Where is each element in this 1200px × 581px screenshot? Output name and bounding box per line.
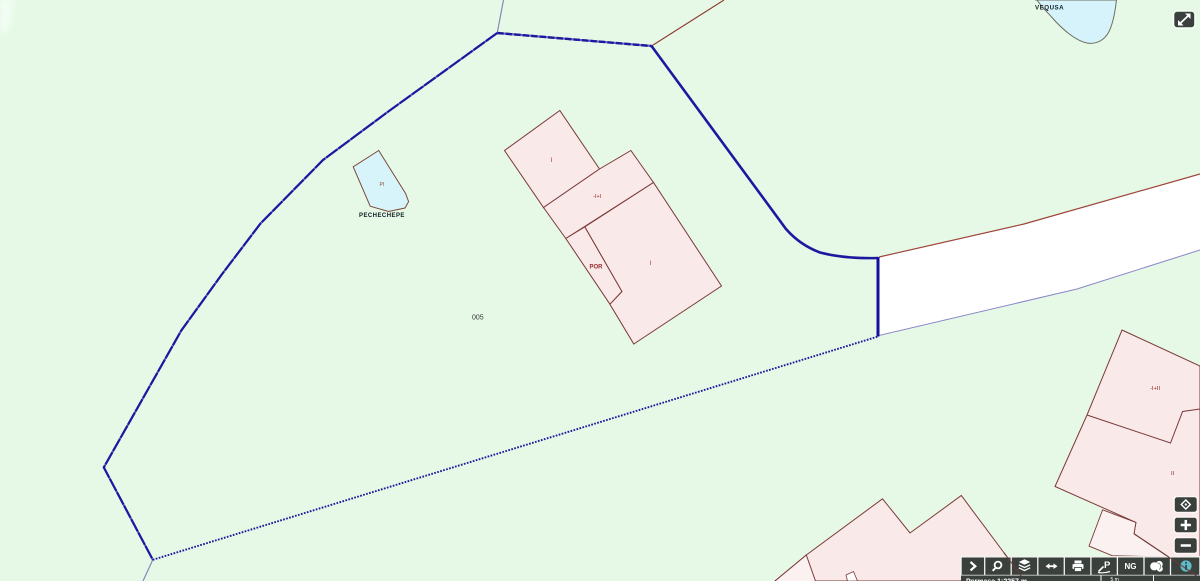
svg-text:5 m: 5 m (1111, 577, 1119, 581)
svg-text:PI: PI (380, 182, 385, 188)
svg-text:-I+I: -I+I (593, 194, 602, 200)
svg-text:NG: NG (1125, 562, 1137, 571)
svg-text:P: P (1104, 560, 1111, 571)
svg-text:POR: POR (590, 265, 604, 271)
svg-text:PECHECHEPE: PECHECHEPE (359, 213, 405, 219)
svg-text:II: II (1171, 471, 1175, 477)
svg-text:VEQUSA: VEQUSA (1035, 5, 1064, 12)
svg-text:-I+II: -I+II (1150, 386, 1161, 392)
svg-text:005: 005 (472, 315, 484, 322)
